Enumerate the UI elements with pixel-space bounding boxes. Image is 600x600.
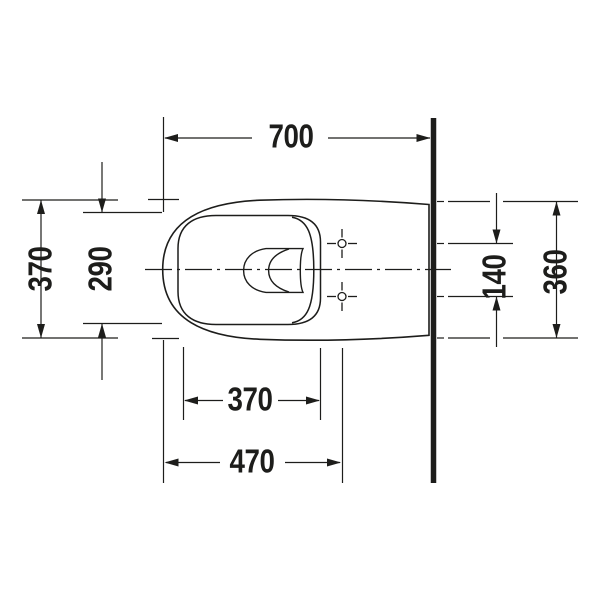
flush-inner-arc <box>269 249 289 292</box>
dim-label-width-at-wall: 360 <box>539 250 572 295</box>
mounting-hole-bottom <box>327 282 357 311</box>
dim-label-inner-bowl-depth: 370 <box>228 383 273 416</box>
drawing-geometry <box>0 0 600 600</box>
dim-label-inner-bowl-width: 290 <box>84 247 117 292</box>
mounting-hole-top <box>327 229 357 258</box>
dim-label-overall-width-front: 370 <box>24 247 57 292</box>
technical-drawing-canvas: 700 370 290 140 360 370 470 <box>0 0 600 600</box>
dim-label-front-to-holes: 470 <box>230 445 275 478</box>
dim-label-hole-spacing: 140 <box>478 255 511 300</box>
dim-label-overall-depth: 700 <box>269 120 314 153</box>
flush-opening-outline <box>244 249 303 293</box>
